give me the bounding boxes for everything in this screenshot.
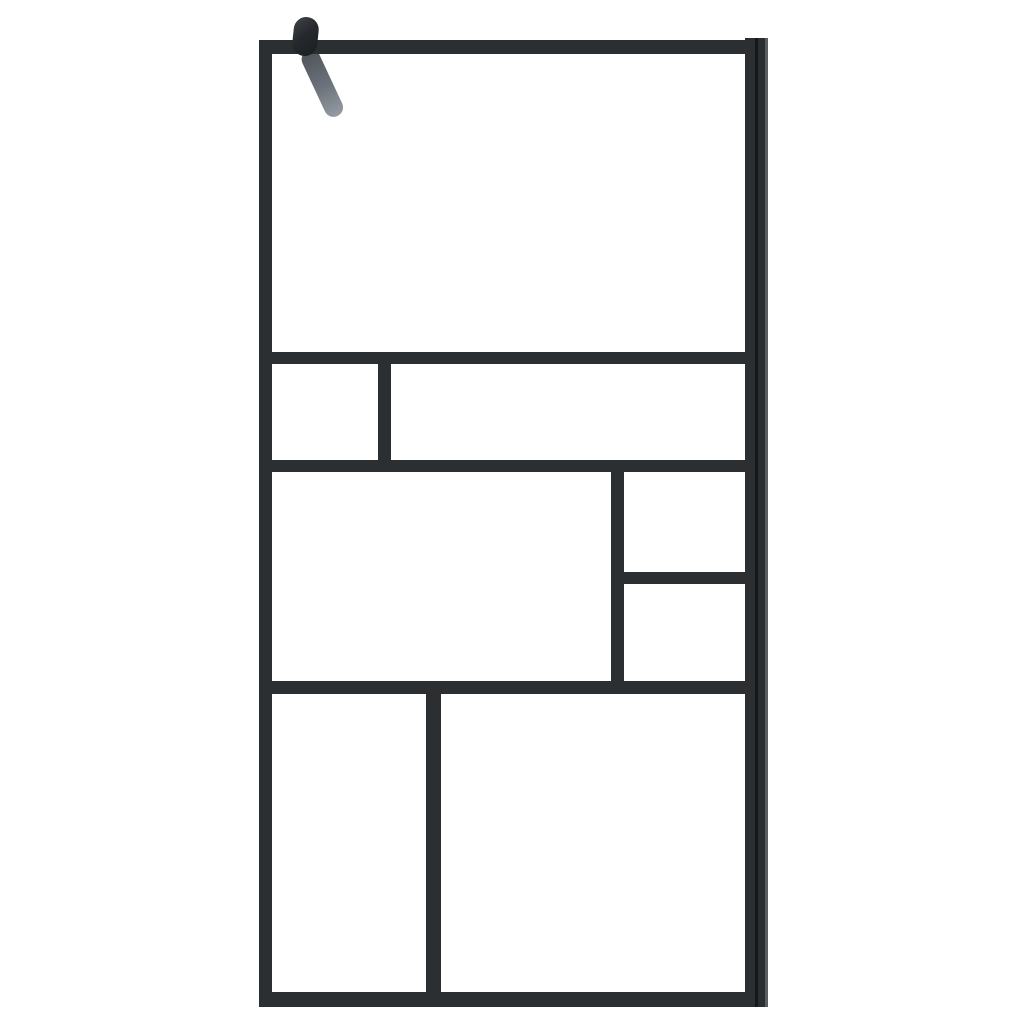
mullion-v3-bottom-divider [426, 681, 441, 1007]
shower-screen-photo [0, 0, 1024, 1024]
mullion-h4-full-width [266, 681, 752, 694]
mullion-h2-full-width [266, 460, 752, 472]
frame-bottom-bar [259, 992, 768, 1007]
glass-pane-bottom-left [272, 694, 426, 992]
frame-right-wall-profile [745, 38, 768, 1007]
glass-pane-top [272, 54, 745, 352]
glass-pane-row3-right-upper [624, 472, 745, 572]
glass-pane-row2-right-wide [391, 364, 745, 460]
glass-pane-row3-left-large [272, 472, 611, 681]
glass-pane-row2-left-small [272, 364, 378, 460]
frame-top-bar [259, 40, 753, 54]
glass-pane-row3-right-lower [624, 584, 745, 681]
mullion-h3-right-split [617, 572, 750, 584]
glass-pane-bottom-right [441, 694, 745, 992]
mullion-v1-row2-divider [378, 352, 391, 472]
frame-left-bar [259, 40, 272, 1007]
mullion-h1-full-width [266, 352, 752, 364]
